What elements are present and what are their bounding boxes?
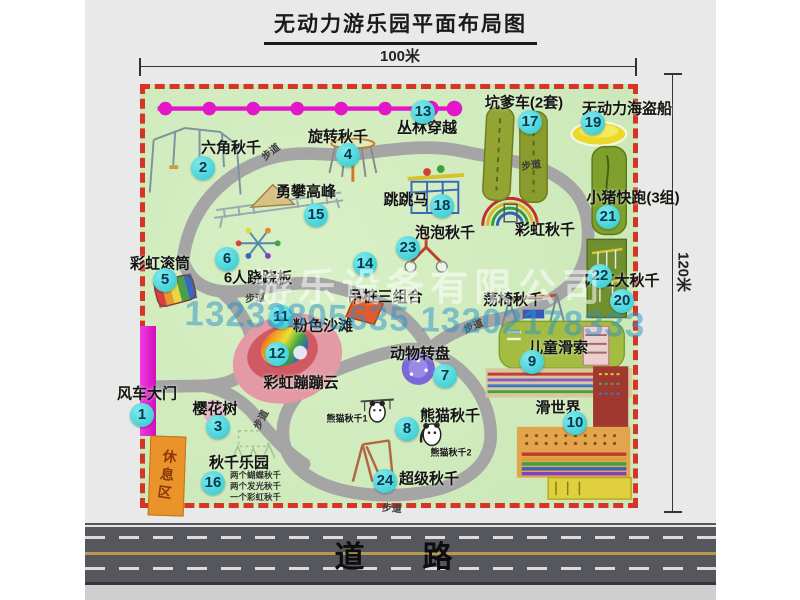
poi-19-badge: 19	[581, 111, 605, 135]
poi-8-badge: 8	[395, 417, 419, 441]
dimension-line-vertical	[672, 74, 673, 512]
swing-park-details: 两个蝴蝶秋千 两个发光秋千 一个彩虹秋千	[230, 470, 281, 503]
trail-label: 步道	[245, 289, 266, 305]
poi-15-label: 勇攀高峰	[276, 181, 336, 202]
poi-14-badge: 14	[353, 252, 377, 276]
trail-label: 步道	[520, 155, 542, 173]
road: 道 路	[85, 523, 716, 585]
poi-16-badge: 16	[201, 471, 225, 495]
swing-park-detail-line: 一个彩虹秋千	[230, 492, 281, 503]
poi-8-label: 熊猫秋千	[420, 405, 480, 426]
road-edge-line	[85, 525, 716, 527]
road-label: 道 路	[335, 532, 467, 576]
poi-17-badge: 17	[518, 110, 542, 134]
swing-park-detail-line: 两个发光秋千	[230, 481, 281, 492]
screenshot-stage: 无动力游乐园平面布局图 100米 120米	[0, 0, 800, 600]
poi-3-badge: 3	[206, 415, 230, 439]
poi-12-badge: 12	[265, 342, 289, 366]
rest-area-label: 休息区	[153, 448, 180, 504]
dimension-tick	[664, 73, 682, 75]
rest-area-box: 休息区	[148, 435, 187, 516]
rainbow-swing-label: 彩虹秋千	[515, 219, 575, 240]
poi-12-label: 彩虹蹦蹦云	[263, 372, 338, 393]
photo-background: 无动力游乐园平面布局图 100米 120米	[85, 0, 716, 600]
dimension-label-120m: 120米	[674, 252, 695, 292]
poi-9-badge: 9	[520, 350, 544, 374]
poi-1-label: 风车大门	[117, 383, 177, 404]
poi-14-label: 吊桩三组合	[347, 286, 422, 307]
panda-swing-1-label: 熊猫秋千1	[326, 412, 367, 425]
poi-11-label: 粉色沙滩	[293, 315, 353, 336]
poi-10-badge: 10	[563, 411, 587, 435]
dimension-tick	[139, 58, 141, 76]
poi-6-label: 6人跷跷板	[224, 267, 292, 288]
road-edge-line	[85, 582, 716, 585]
poi-13-badge: 13	[411, 100, 435, 124]
poi-4-badge: 4	[336, 143, 360, 167]
dimension-tick	[664, 511, 682, 513]
poi-18-label: 跳跳马	[383, 189, 428, 210]
swing-park-detail-line: 两个蝴蝶秋千	[230, 470, 281, 481]
road-shoulder	[85, 585, 716, 600]
title-wrap: 无动力游乐园平面布局图	[85, 8, 716, 45]
poi-22-label: 荡椅秋千	[483, 289, 543, 310]
poi-7-label: 动物转盘	[390, 343, 450, 364]
poi-21-label: 小猪快跑(3组)	[586, 187, 679, 208]
panda-swing-2-label: 熊猫秋千2	[430, 446, 471, 459]
trail-label: 步道	[382, 499, 403, 515]
page-title: 无动力游乐园平面布局图	[264, 8, 537, 45]
poi-4-label: 旋转秋千	[308, 126, 368, 147]
poi-22-badge: 22	[588, 264, 612, 288]
poi-6-badge: 6	[215, 247, 239, 271]
park-map: 休息区 步道 步道 步道 步道 步道 步道 风车大门 六角秋千 樱花树 旋转秋千…	[140, 84, 638, 508]
dimension-tick	[635, 58, 637, 76]
poi-21-badge: 21	[596, 205, 620, 229]
poi-7-badge: 7	[433, 364, 457, 388]
poi-23-label: 泡泡秋千	[415, 222, 475, 243]
poi-24-badge: 24	[373, 469, 397, 493]
poi-18-badge: 18	[430, 194, 454, 218]
poi-2-label: 六角秋千	[201, 137, 261, 158]
poi-1-badge: 1	[130, 403, 154, 427]
poi-11-badge: 11	[269, 305, 293, 329]
slide-world-icon	[486, 366, 632, 499]
poi-5-badge: 5	[153, 268, 177, 292]
poi-20-badge: 20	[610, 289, 634, 313]
poi-24-label: 超级秋千	[399, 468, 459, 489]
poi-23-badge: 23	[396, 236, 420, 260]
dimension-label-100m: 100米	[380, 45, 420, 66]
poi-17-label: 坑爹车(2套)	[485, 92, 563, 113]
dimension-line-horizontal	[140, 66, 637, 67]
poi-2-badge: 2	[191, 156, 215, 180]
seesaw-icon	[236, 228, 281, 259]
poi-15-badge: 15	[304, 203, 328, 227]
